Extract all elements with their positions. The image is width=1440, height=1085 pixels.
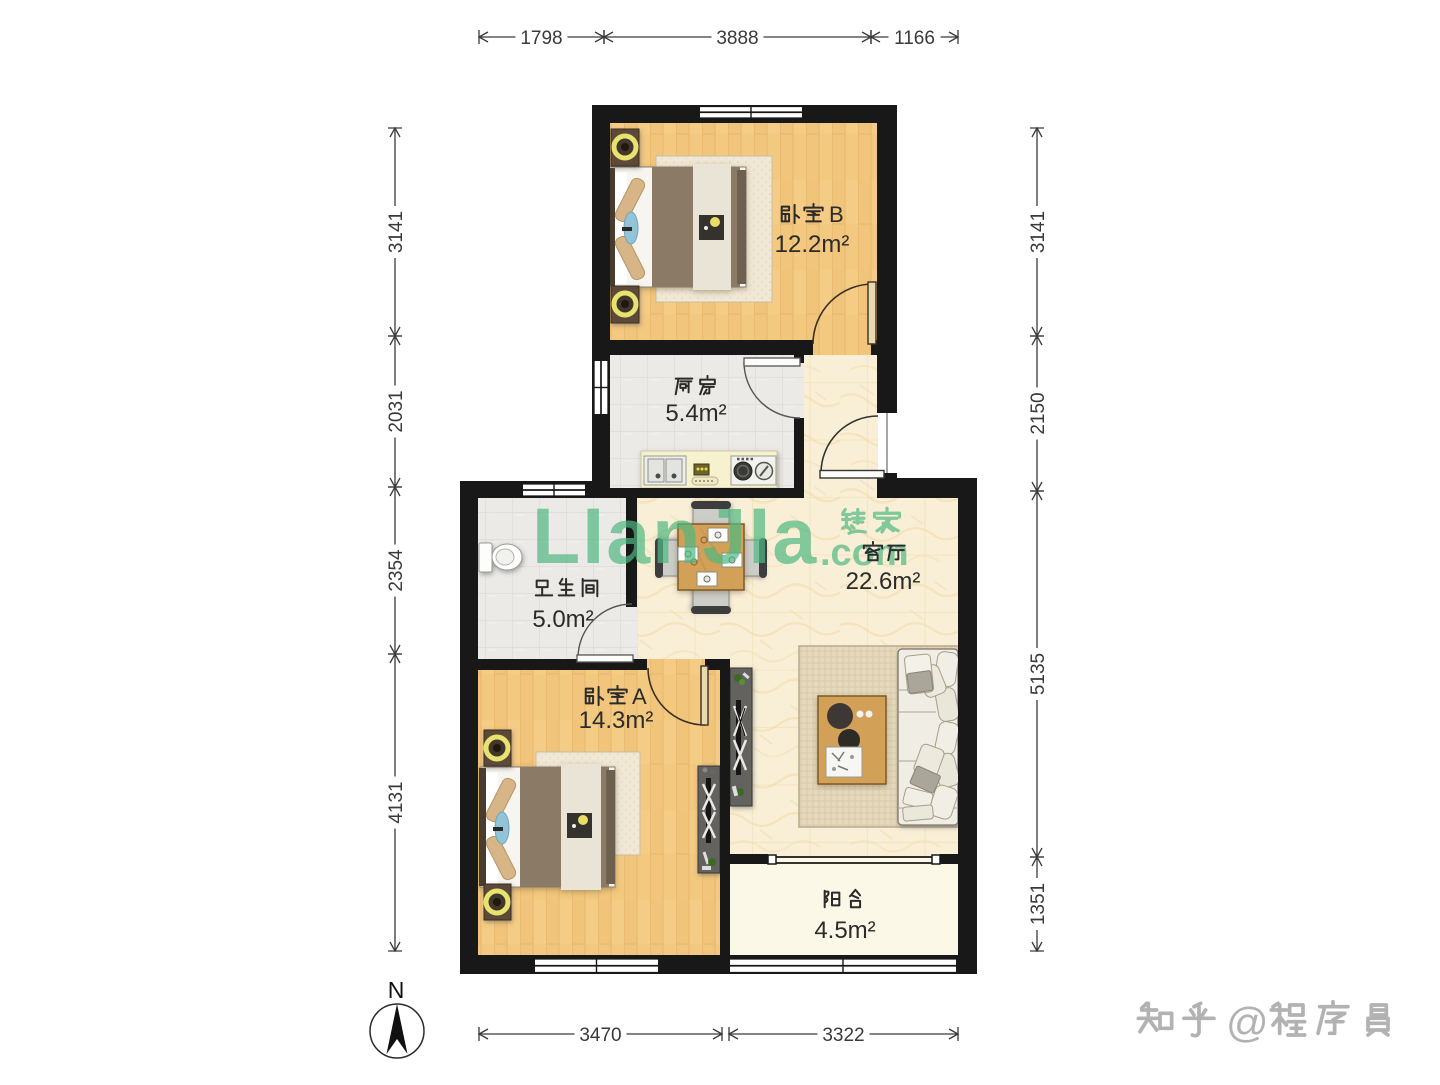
svg-text:B: B: [829, 202, 844, 227]
svg-text:3888: 3888: [716, 28, 758, 49]
svg-text:5.0m²: 5.0m²: [532, 606, 593, 633]
svg-text:12.2m²: 12.2m²: [775, 231, 850, 258]
svg-text:14.3m²: 14.3m²: [579, 707, 654, 734]
svg-text:5135: 5135: [1028, 653, 1049, 695]
svg-text:3141: 3141: [386, 211, 407, 253]
svg-text:@: @: [1226, 999, 1269, 1046]
svg-text:3141: 3141: [1028, 211, 1049, 253]
svg-text:2354: 2354: [386, 549, 407, 592]
svg-text:1798: 1798: [520, 28, 562, 49]
svg-text:3470: 3470: [579, 1025, 621, 1046]
svg-text:LIanJIa: LIanJIa: [532, 491, 818, 580]
svg-text:2031: 2031: [386, 390, 407, 432]
svg-text:22.6m²: 22.6m²: [846, 568, 921, 595]
svg-text:1351: 1351: [1028, 883, 1049, 925]
svg-text:N: N: [388, 977, 405, 1003]
svg-text:3322: 3322: [822, 1025, 864, 1046]
svg-text:A: A: [632, 684, 647, 709]
svg-text:1166: 1166: [894, 28, 935, 49]
svg-text:4131: 4131: [386, 781, 407, 823]
svg-text:2150: 2150: [1028, 392, 1049, 434]
svg-text:5.4m²: 5.4m²: [665, 400, 726, 427]
svg-text:4.5m²: 4.5m²: [814, 917, 875, 944]
